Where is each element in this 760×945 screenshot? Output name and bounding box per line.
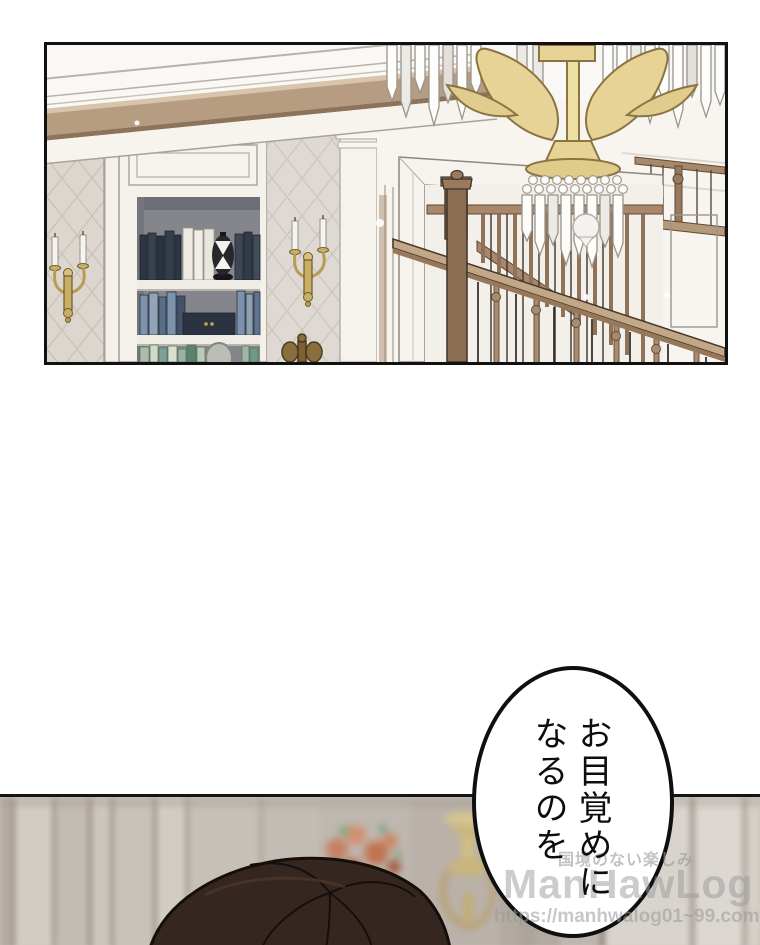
panel-library-scene [44, 42, 728, 365]
library-scene-art [47, 45, 725, 362]
shelf-board-2 [137, 335, 260, 344]
speech-bubble-text: お目覚めになるのを [526, 716, 614, 916]
speech-line-2: なるのを [528, 716, 568, 864]
comic-page: 国境のない楽しみ ManHawLog https://manhwalog01~9… [0, 0, 760, 945]
speech-line-1: お目覚めに [572, 716, 612, 901]
bookshelf-top-row [140, 228, 260, 280]
pillar-left [105, 135, 119, 362]
right-wallpaper [267, 130, 340, 362]
shelf-board-1 [137, 280, 260, 289]
pillar-right [336, 127, 381, 362]
